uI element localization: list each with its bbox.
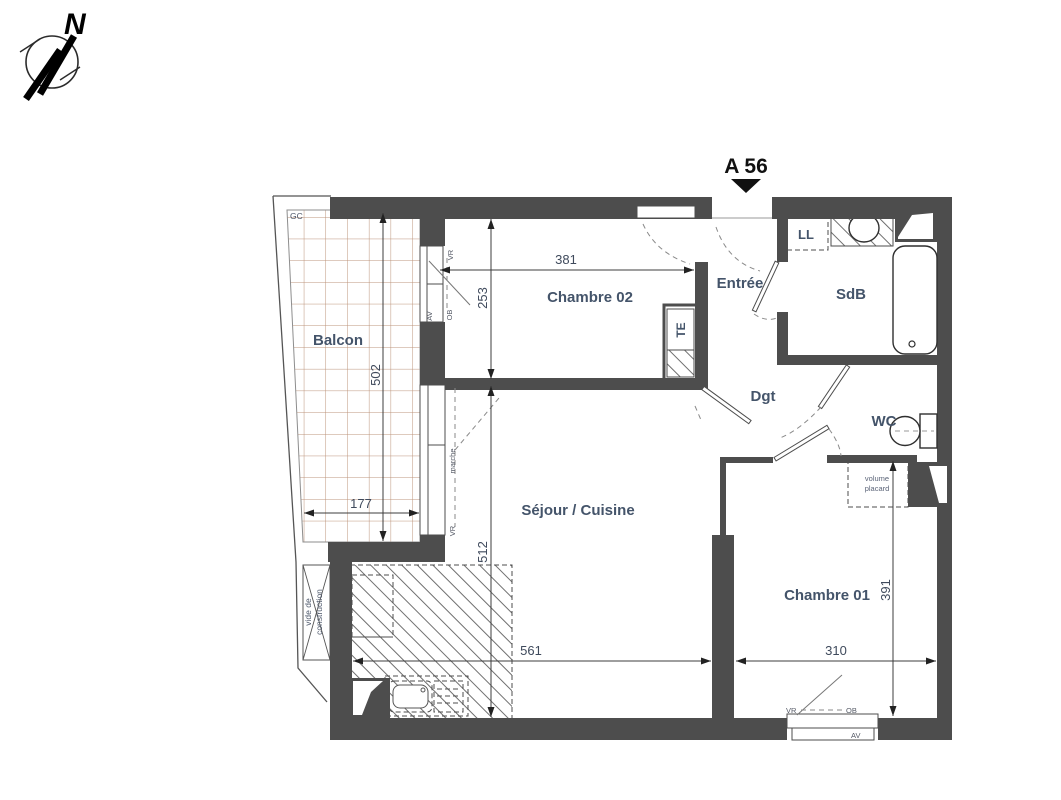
te-label: TE [674,322,688,337]
sejour-bay-window: marche VR [420,385,499,536]
construction-void: vide de construction [303,565,330,660]
pillar-bottom-left [350,678,390,718]
wc-label: WC [872,413,897,430]
balcon-label: Balcon [313,332,363,349]
volume-placard: volume placard [848,462,908,507]
wc-door [780,365,850,438]
entrance-door [712,218,772,271]
floor-plan-drawing: N A 56 GC Balcon vide de construction [0,0,1061,800]
chambre02-door [637,206,695,264]
ob-label-chambre01: OB [846,706,857,715]
dim-sejour-depth: 512 [475,541,490,563]
ob-label-chambre02: OB [445,310,454,321]
dim-balcon-width: 177 [350,496,372,511]
dim-balcon-depth: 502 [368,364,383,386]
chambre01-window: VR OB AV [786,675,878,740]
room-labels: Chambre 02 Entrée SdB Dgt WC Séjour / Cu… [521,275,896,604]
sejour-door [695,386,751,423]
unit-label: A 56 [724,155,768,178]
vr-label-sejour: VR [448,525,457,536]
toilet [890,414,937,448]
entree-label: Entrée [717,275,764,292]
av-label-chambre02: AV [425,311,434,320]
sdb-label: SdB [836,286,866,303]
vide-label-1: vide de [303,598,313,626]
chambre02-window: VR OB AV [420,246,470,322]
dim-sejour-width: 561 [520,643,542,658]
vr-label-chambre01: VR [786,706,797,715]
chambre02-label: Chambre 02 [547,289,633,306]
sejour-label: Séjour / Cuisine [521,502,634,519]
vr-label-chambre02: VR [446,249,455,260]
compass-north-label: N [64,8,87,41]
dgt-label: Dgt [751,388,776,405]
placard-label-1: volume [865,474,889,483]
marche-label: marche [448,448,457,473]
pillar-top-right [895,210,937,242]
av-label-chambre01: AV [851,731,860,740]
compass-north-icon: N [20,8,87,99]
vide-label-2: construction [314,589,324,635]
dim-chambre01-width: 310 [825,643,847,658]
gc-label: GC [290,211,303,221]
balcony-floor [287,210,420,542]
pillar-mid-right [918,462,950,507]
dim-chambre02-depth: 253 [475,287,490,309]
electrical-closet: TE [664,305,697,380]
unit-marker: A 56 [724,155,768,193]
entrance-arrow-icon [731,179,761,193]
bathtub [893,246,937,354]
chambre01-label: Chambre 01 [784,587,870,604]
ll-label: LL [798,227,814,242]
dim-chambre01-depth: 391 [878,579,893,601]
floor-plan-page: N A 56 GC Balcon vide de construction [0,0,1061,800]
placard-label-2: placard [865,484,890,493]
dim-chambre02-width: 381 [555,252,577,267]
